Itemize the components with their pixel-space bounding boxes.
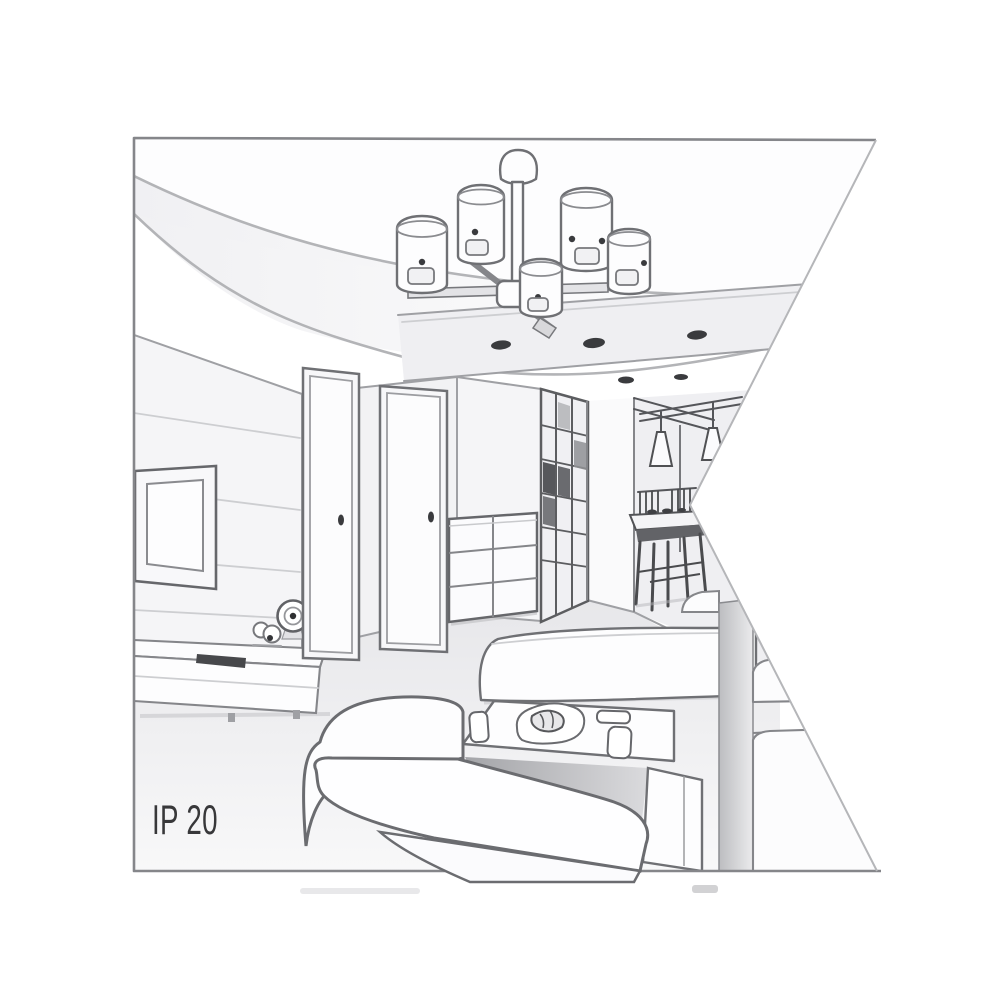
room-sketch [0, 0, 1000, 1000]
dark-pane [558, 402, 570, 430]
dark-pane [543, 462, 555, 495]
product-illustration: IP 20 [0, 0, 1000, 1000]
tableware [662, 509, 672, 514]
dark-pane [574, 440, 586, 470]
cup [607, 726, 632, 758]
tv-screen [147, 480, 203, 571]
napkin [597, 710, 630, 723]
framed-scene [134, 135, 884, 875]
print-smudge [300, 888, 420, 894]
cup [469, 711, 489, 742]
croissant [531, 711, 563, 732]
hall-pillar [587, 398, 634, 612]
chest-of-drawers [449, 513, 537, 624]
tableware [678, 508, 686, 512]
chaise-sofa [480, 628, 756, 703]
dark-pane [558, 466, 570, 498]
chandelier-shade [608, 229, 650, 294]
chandelier-canopy [500, 150, 537, 184]
chandelier-shade [397, 216, 447, 293]
glass-partition [541, 389, 588, 622]
sofa-seat-right [643, 768, 702, 871]
chandelier-shade [561, 188, 612, 271]
print-smudge [692, 885, 718, 893]
chandelier-shade [520, 259, 562, 317]
wall-tv [135, 466, 216, 589]
door-leaf [310, 376, 352, 653]
tableware [647, 510, 657, 515]
spotlight [674, 374, 688, 380]
chandelier-shade [458, 185, 504, 264]
dark-pane [543, 496, 555, 527]
door-handle [338, 515, 344, 526]
sofa-arm-panel [719, 599, 753, 871]
door-handle [428, 512, 434, 523]
cabinet-leg [293, 710, 300, 719]
door-left [303, 368, 359, 660]
cabinet-leg [228, 713, 235, 722]
door-right [380, 386, 447, 652]
ip-rating-label: IP 20 [152, 799, 218, 841]
spotlight [618, 377, 634, 384]
